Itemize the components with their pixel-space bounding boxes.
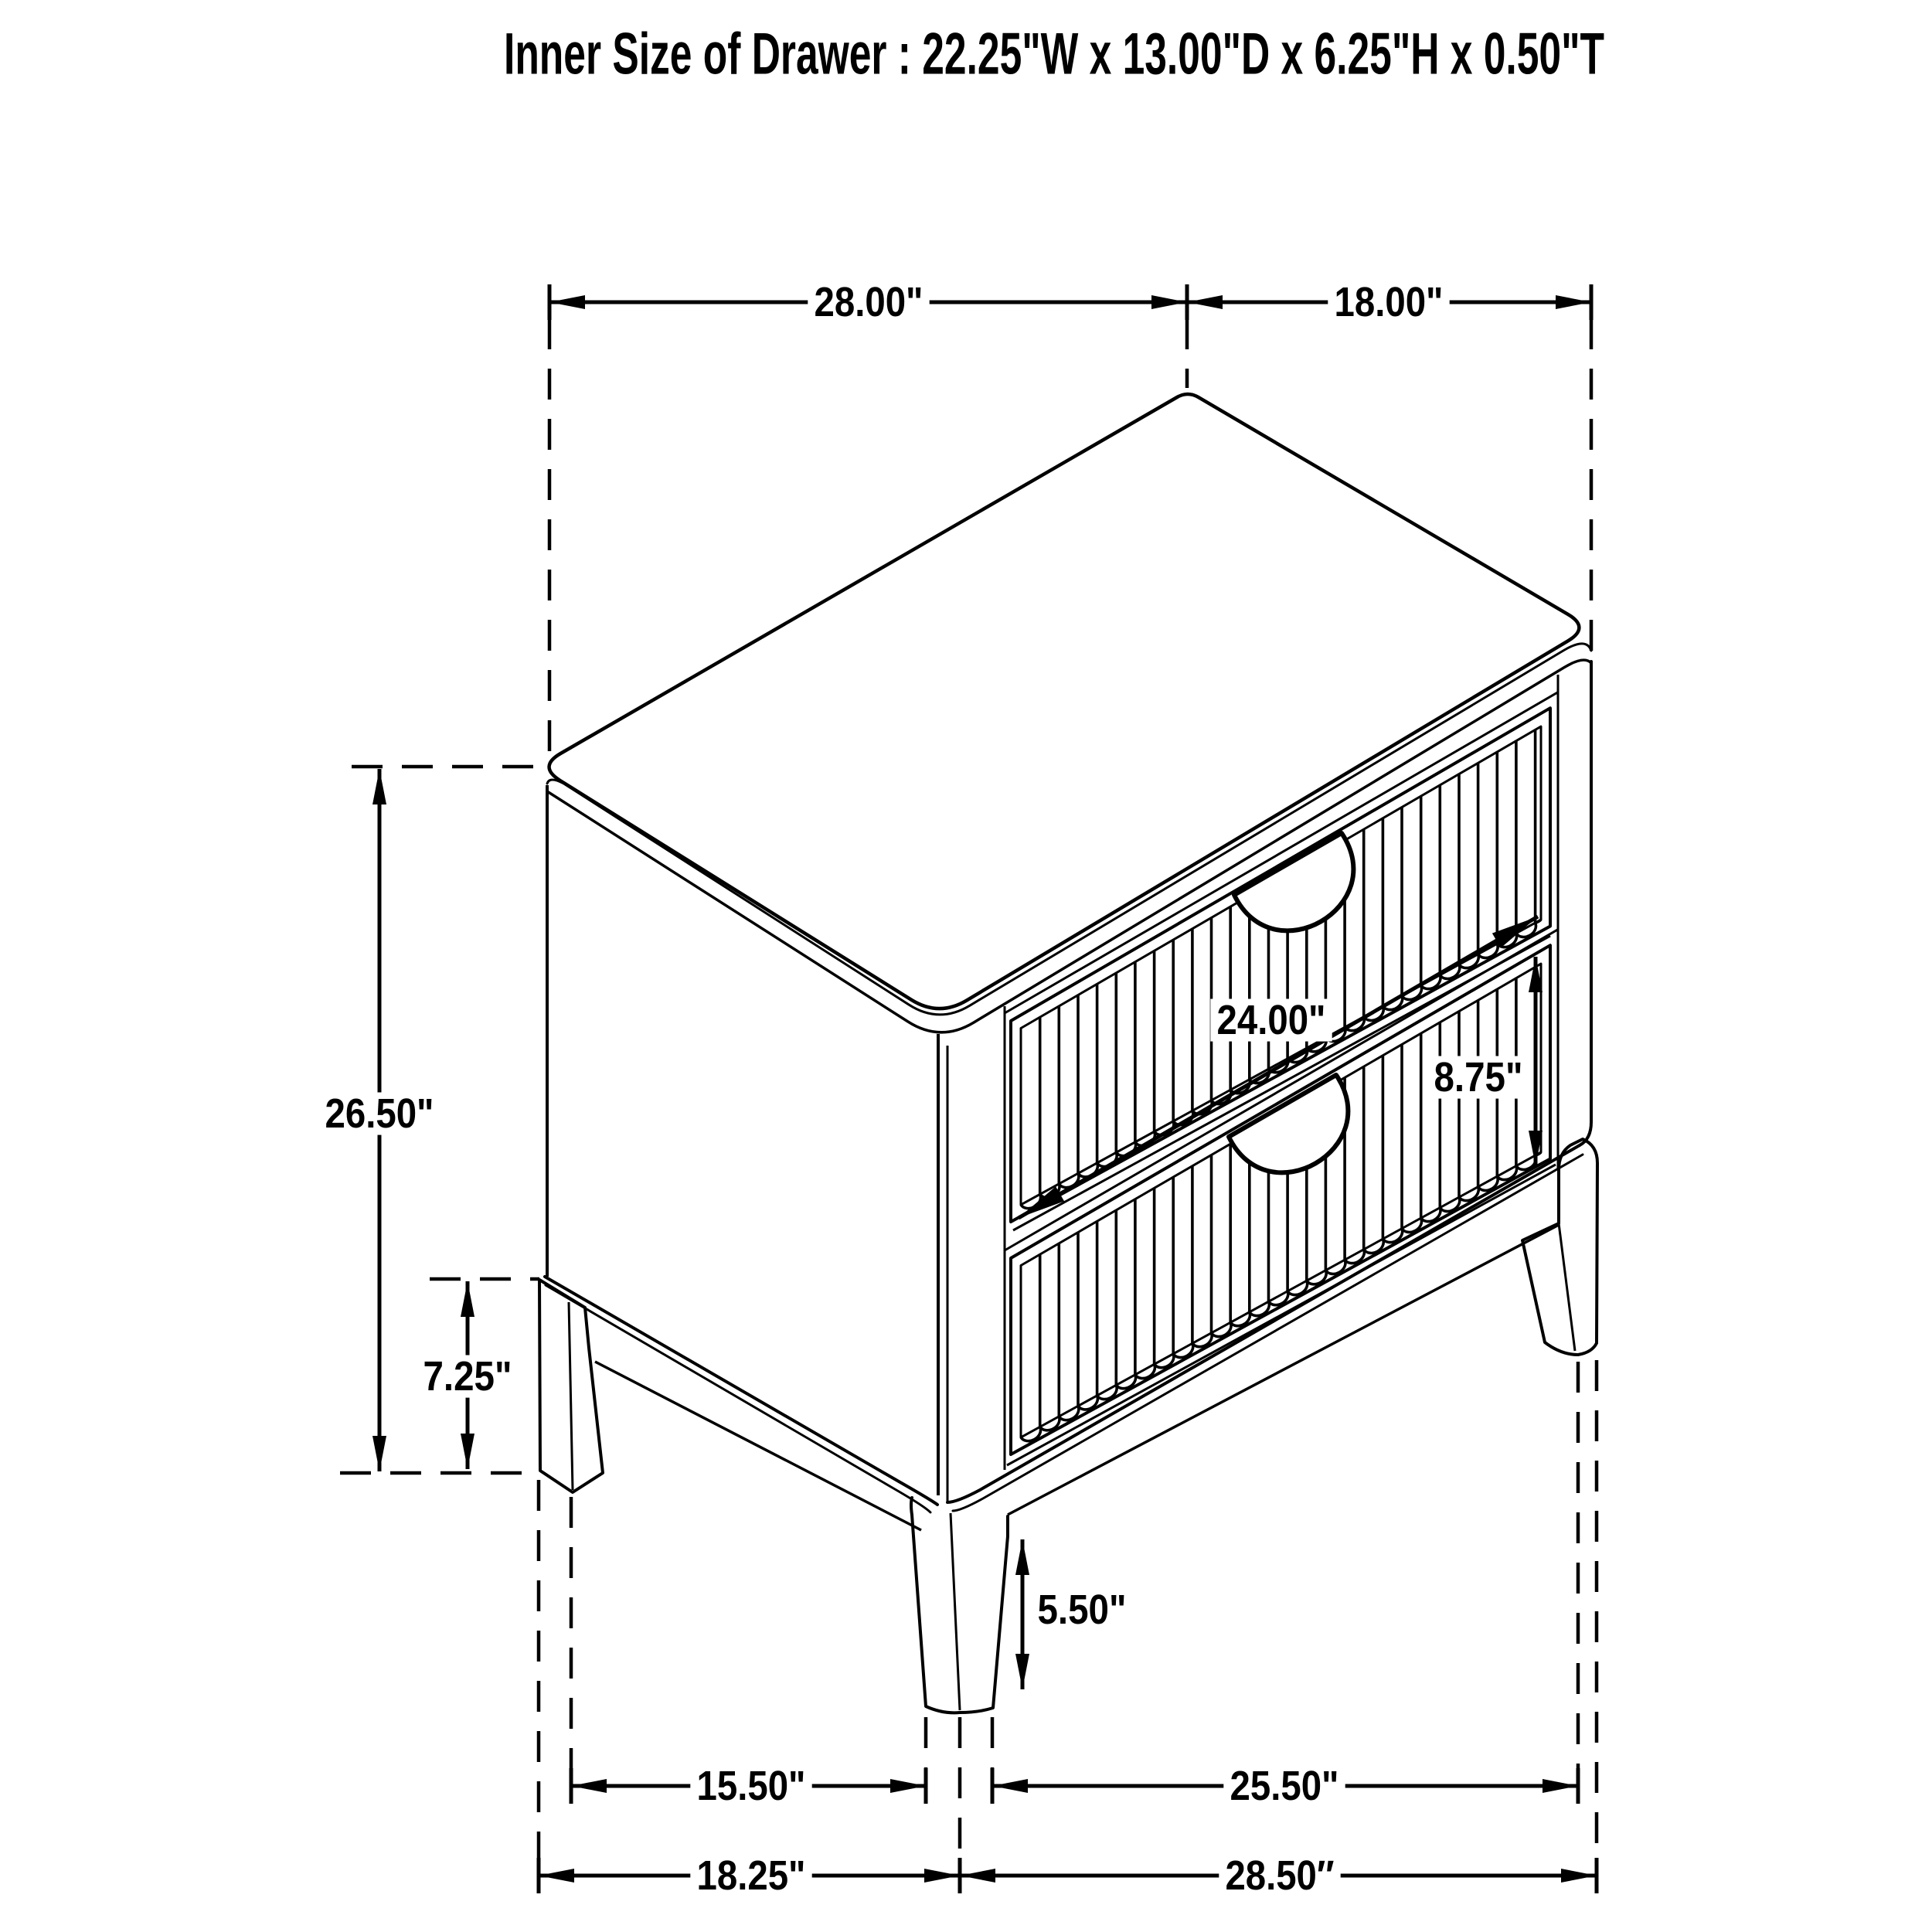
svg-text:15.50": 15.50" xyxy=(697,1763,806,1809)
svg-text:Inner Size of Drawer : 22.25"W: Inner Size of Drawer : 22.25"W x 13.00"D… xyxy=(504,22,1604,87)
svg-text:28.00": 28.00" xyxy=(815,279,923,325)
svg-text:24.00": 24.00" xyxy=(1217,997,1326,1043)
svg-text:18.00": 18.00" xyxy=(1335,279,1444,325)
svg-text:7.25": 7.25" xyxy=(423,1353,512,1400)
svg-text:18.25": 18.25" xyxy=(697,1852,806,1899)
svg-text:5.50": 5.50" xyxy=(1038,1587,1127,1633)
svg-text:26.50": 26.50" xyxy=(325,1090,434,1137)
svg-text:8.75": 8.75" xyxy=(1434,1054,1523,1100)
svg-text:28.50″: 28.50″ xyxy=(1226,1852,1335,1899)
svg-text:25.50": 25.50" xyxy=(1230,1763,1339,1809)
